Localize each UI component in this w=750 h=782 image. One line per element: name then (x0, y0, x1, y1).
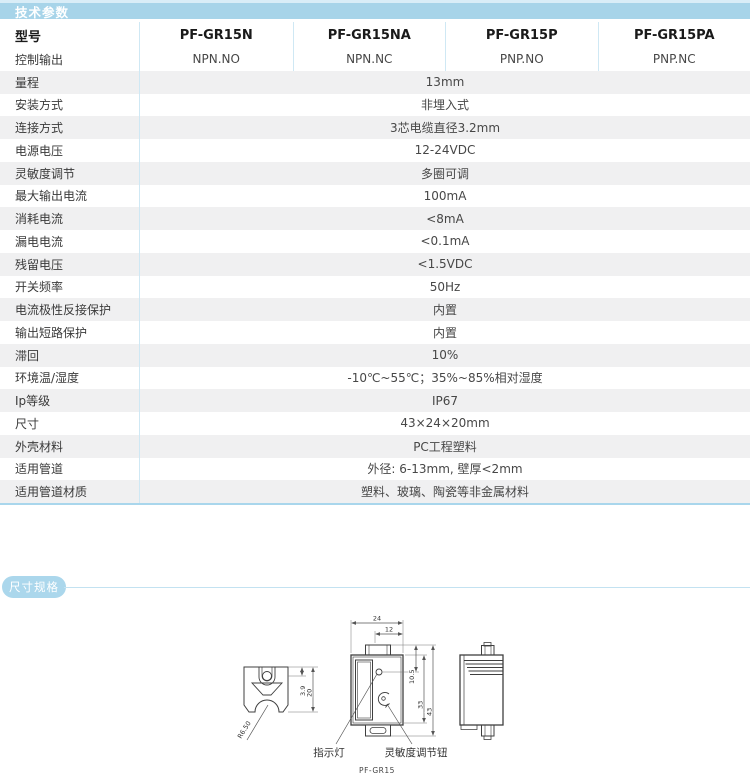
spec-value: 外径: 6-13mm, 壁厚<2mm (140, 460, 750, 477)
tech-params-section-header: 技术参数 (0, 0, 750, 19)
side-view-drawing (460, 643, 503, 740)
dim-led-offset: 10.5 (408, 670, 416, 684)
spec-label: 滞回 (0, 344, 140, 367)
dimensions-section-pill: 尺寸规格 (2, 576, 66, 598)
spec-row: 消耗电流<8mA (0, 207, 750, 230)
spec-row: 适用管道外径: 6-13mm, 壁厚<2mm (0, 458, 750, 481)
spec-row: 最大输出电流100mA (0, 185, 750, 208)
dimension-drawings-svg: 3.9 20 R6.50 (0, 608, 750, 778)
top-view-drawing (244, 667, 318, 740)
spec-value: 13mm (140, 75, 750, 89)
spec-value: 43×24×20mm (140, 416, 750, 430)
spec-row: 输出短路保护内置 (0, 321, 750, 344)
model-name-2: PF-GR15NA (293, 22, 446, 48)
spec-value: 10% (140, 348, 750, 362)
dim-top-view-height: 20 (306, 689, 314, 697)
spec-value: 100mA (140, 189, 750, 203)
spec-value: <8mA (140, 212, 750, 226)
spec-row: 外壳材料PC工程塑料 (0, 435, 750, 458)
model-name-1: PF-GR15N (140, 22, 293, 48)
spec-label: 残留电压 (0, 253, 140, 276)
tech-params-title: 技术参数 (15, 5, 69, 20)
spec-row: 安装方式非埋入式 (0, 94, 750, 117)
spec-row: 电源电压12-24VDC (0, 139, 750, 162)
spec-row: 电流极性反接保护内置 (0, 298, 750, 321)
spec-value: PC工程塑料 (140, 438, 750, 455)
spec-label: 控制输出 (0, 48, 140, 71)
spec-value: 3芯电缆直径3.2mm (140, 119, 750, 136)
indicator-light-label: 指示灯 (313, 746, 345, 759)
control-output-row: 控制输出 NPN.NO NPN.NC PNP.NO PNP.NC (0, 48, 750, 71)
front-view-drawing (336, 620, 436, 744)
spec-value: 非埋入式 (140, 96, 750, 113)
output-value-2: NPN.NC (293, 48, 446, 71)
dim-tab-width: 12 (385, 626, 393, 634)
spec-label: 电流极性反接保护 (0, 298, 140, 321)
sensitivity-knob-label: 灵敏度调节钮 (385, 746, 448, 759)
spec-row: 滞回10% (0, 344, 750, 367)
spec-table: 型号 PF-GR15N PF-GR15NA PF-GR15P PF-GR15PA… (0, 22, 750, 505)
drawing-model-label: PF-GR15 (359, 766, 395, 775)
spec-row: 残留电压<1.5VDC (0, 253, 750, 276)
spec-label: 环境温/湿度 (0, 367, 140, 390)
spec-label: 适用管道 (0, 458, 140, 481)
spec-label: 最大输出电流 (0, 185, 140, 208)
spec-value: 内置 (140, 301, 750, 318)
spec-header-row: 型号 PF-GR15N PF-GR15NA PF-GR15P PF-GR15PA (0, 22, 750, 48)
spec-row: Ip等级IP67 (0, 389, 750, 412)
spec-value: 12-24VDC (140, 143, 750, 157)
section-divider-line (64, 587, 750, 588)
spec-rows-container: 量程13mm安装方式非埋入式连接方式3芯电缆直径3.2mm电源电压12-24VD… (0, 71, 750, 503)
spec-label: 开关频率 (0, 276, 140, 299)
spec-label: Ip等级 (0, 389, 140, 412)
spec-label: 输出短路保护 (0, 321, 140, 344)
model-column-header: 型号 (0, 22, 140, 48)
spec-row: 灵敏度调节多圈可调 (0, 162, 750, 185)
spec-row: 环境温/湿度-10℃~55℃；35%~85%相对湿度 (0, 367, 750, 390)
spec-value: 内置 (140, 324, 750, 341)
spec-label: 量程 (0, 71, 140, 94)
spec-value: 多圈可调 (140, 165, 750, 182)
spec-value: <0.1mA (140, 234, 750, 248)
dim-total-height: 43 (426, 708, 434, 716)
spec-label: 灵敏度调节 (0, 162, 140, 185)
dim-body-height: 33 (417, 701, 425, 709)
spec-row: 漏电电流<0.1mA (0, 230, 750, 253)
spec-row: 量程13mm (0, 71, 750, 94)
spec-label: 电源电压 (0, 139, 140, 162)
spec-label: 外壳材料 (0, 435, 140, 458)
spec-row: 开关频率50Hz (0, 276, 750, 299)
spec-row: 连接方式3芯电缆直径3.2mm (0, 116, 750, 139)
spec-value: 塑料、玻璃、陶瓷等非金属材料 (140, 483, 750, 500)
spec-label: 适用管道材质 (0, 480, 140, 503)
spec-value: 50Hz (140, 280, 750, 294)
dim-top-width: 24 (373, 615, 381, 623)
dimensions-title: 尺寸规格 (9, 580, 59, 594)
output-value-3: PNP.NO (445, 48, 598, 71)
dimension-drawings: 3.9 20 R6.50 (0, 608, 750, 778)
spec-label: 消耗电流 (0, 207, 140, 230)
spec-label: 漏电电流 (0, 230, 140, 253)
spec-value: -10℃~55℃；35%~85%相对湿度 (140, 369, 750, 386)
dim-groove-radius: R6.50 (236, 720, 253, 740)
model-name-3: PF-GR15P (445, 22, 598, 48)
spec-label: 尺寸 (0, 412, 140, 435)
spec-row: 适用管道材质塑料、玻璃、陶瓷等非金属材料 (0, 480, 750, 503)
spec-label: 连接方式 (0, 116, 140, 139)
spec-value: IP67 (140, 394, 750, 408)
output-value-1: NPN.NO (140, 48, 293, 71)
output-value-4: PNP.NC (598, 48, 750, 71)
model-name-4: PF-GR15PA (598, 22, 750, 48)
spec-label: 安装方式 (0, 94, 140, 117)
spec-row: 尺寸43×24×20mm (0, 412, 750, 435)
spec-value: <1.5VDC (140, 257, 750, 271)
